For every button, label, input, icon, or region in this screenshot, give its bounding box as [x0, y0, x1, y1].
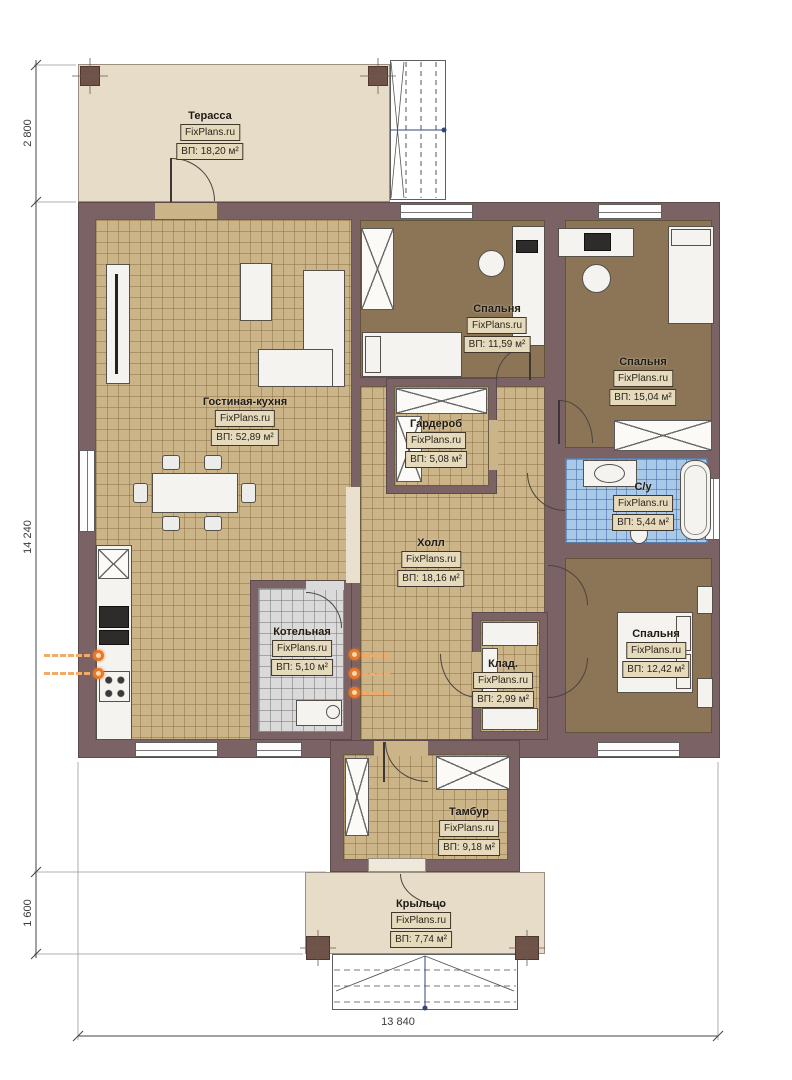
utility-line-left	[44, 654, 90, 657]
room-area: ВП: 12,42 м²	[622, 661, 689, 678]
window-bedroom2-top	[598, 204, 662, 219]
room-name: Гардероб	[410, 418, 462, 430]
utility-point-icon	[349, 668, 360, 679]
site-badge: FixPlans.ru	[467, 317, 527, 334]
site-badge: FixPlans.ru	[613, 370, 673, 387]
room-area: ВП: 5,44 м²	[612, 514, 674, 531]
room-name: Котельная	[273, 626, 331, 638]
site-badge: FixPlans.ru	[401, 551, 461, 568]
dining-chair	[204, 516, 222, 531]
utility-point-icon	[93, 650, 104, 661]
porch-door-opening	[368, 858, 426, 872]
room-label-storage: Клад. FixPlans.ru ВП: 2,99 м²	[472, 658, 534, 708]
dining-table	[152, 473, 238, 513]
bedroom2-printer	[584, 233, 611, 251]
window-living-bottom-2	[256, 742, 302, 757]
bedroom2-pillow	[671, 229, 711, 246]
kitchen-hob	[98, 549, 129, 579]
boiler-door-opening	[306, 581, 344, 590]
wardrobe-door-opening	[489, 420, 498, 470]
dining-chair	[204, 455, 222, 470]
room-area: ВП: 15,04 м²	[609, 389, 676, 406]
storage-shelf-top	[482, 622, 538, 646]
vestibule-closet	[345, 758, 369, 836]
dimension-left-bottom: 1 600	[22, 899, 34, 927]
bedroom3-nightstand-top	[697, 586, 713, 614]
room-label-hall: Холл FixPlans.ru ВП: 18,16 м²	[397, 537, 464, 587]
bedroom1-wardrobe	[361, 228, 394, 310]
room-area: ВП: 18,16 м²	[397, 570, 464, 587]
room-label-vestibule: Тамбур FixPlans.ru ВП: 9,18 м²	[438, 806, 500, 856]
site-badge: FixPlans.ru	[180, 124, 240, 141]
site-badge: FixPlans.ru	[391, 912, 451, 929]
utility-line-boiler	[362, 654, 390, 657]
terrace-post-right	[368, 66, 388, 86]
kitchen-appliance	[99, 630, 129, 645]
site-badge: FixPlans.ru	[215, 410, 275, 427]
bedroom1-pillow	[365, 336, 381, 373]
coffee-table	[240, 263, 272, 321]
room-name: Терасса	[188, 110, 232, 122]
room-area: ВП: 5,08 м²	[405, 451, 467, 468]
bedroom2-wardrobe	[614, 420, 712, 451]
utility-line-boiler	[362, 673, 390, 676]
boiler-dial	[326, 705, 340, 719]
room-label-wardrobe: Гардероб FixPlans.ru ВП: 5,08 м²	[405, 418, 467, 468]
room-label-terrace: Терасса FixPlans.ru ВП: 18,20 м²	[176, 110, 243, 160]
room-name: Спальня	[473, 303, 521, 315]
dining-chair	[241, 483, 256, 503]
room-label-bedroom-3: Спальня FixPlans.ru ВП: 12,42 м²	[622, 628, 689, 678]
site-badge: FixPlans.ru	[473, 672, 533, 689]
room-area: ВП: 9,18 м²	[438, 839, 500, 856]
site-badge: FixPlans.ru	[613, 495, 673, 512]
utility-point-icon	[93, 668, 104, 679]
site-badge: FixPlans.ru	[272, 640, 332, 657]
bedroom2-chair	[582, 264, 611, 293]
storage-shelf-bottom	[482, 708, 538, 730]
bathtub-inner	[684, 465, 707, 535]
room-area: ВП: 18,20 м²	[176, 143, 243, 160]
utility-point-icon	[349, 687, 360, 698]
site-badge: FixPlans.ru	[626, 642, 686, 659]
kitchen-sink	[99, 606, 129, 628]
wardrobe-closet-top	[396, 388, 487, 414]
terrace-door-opening	[155, 203, 217, 219]
tv-unit	[106, 264, 130, 384]
window-living-bottom-1	[135, 742, 218, 757]
floor-plan: 2 800 14 240 1 600 13 840 Терасса FixPla…	[0, 0, 792, 1080]
room-label-porch: Крыльцо FixPlans.ru ВП: 7,74 м²	[390, 898, 452, 948]
room-label-bedroom-1: Спальня FixPlans.ru ВП: 11,59 м²	[464, 303, 531, 353]
dimension-bottom: 13 840	[381, 1016, 415, 1028]
bedroom3-nightstand-bottom	[697, 678, 713, 708]
room-name: Крыльцо	[396, 898, 446, 910]
room-name: Тамбур	[449, 806, 489, 818]
window-bedroom3-bottom	[597, 742, 680, 757]
bedroom1-chair	[478, 250, 505, 277]
room-name: Холл	[417, 537, 445, 549]
porch-post-right	[515, 936, 539, 960]
room-label-bedroom-2: Спальня FixPlans.ru ВП: 15,04 м²	[609, 356, 676, 406]
porch-steps	[332, 954, 518, 1010]
room-name: С/у	[634, 481, 651, 493]
utility-point-icon	[349, 649, 360, 660]
room-label-boiler: Котельная FixPlans.ru ВП: 5,10 м²	[271, 626, 333, 676]
kitchen-stove	[99, 671, 130, 702]
room-label-living: Гостиная-кухня FixPlans.ru ВП: 52,89 м²	[203, 396, 287, 446]
room-area: ВП: 5,10 м²	[271, 659, 333, 676]
window-living-left	[79, 450, 95, 532]
dining-chair	[162, 516, 180, 531]
room-area: ВП: 11,59 м²	[464, 336, 531, 353]
site-badge: FixPlans.ru	[439, 820, 499, 837]
dimension-left-top: 2 800	[22, 119, 34, 147]
living-hall-opening	[346, 487, 360, 583]
sofa-section-chaise	[258, 349, 333, 387]
utility-line-boiler	[362, 692, 390, 695]
room-name: Гостиная-кухня	[203, 396, 287, 408]
room-area: ВП: 7,74 м²	[390, 931, 452, 948]
dining-chair	[162, 455, 180, 470]
room-name: Спальня	[619, 356, 667, 368]
dining-chair	[133, 483, 148, 503]
dimension-left-middle: 14 240	[22, 520, 34, 554]
tv-screen	[115, 274, 118, 374]
room-area: ВП: 52,89 м²	[211, 429, 278, 446]
site-badge: FixPlans.ru	[406, 432, 466, 449]
room-area: ВП: 2,99 м²	[472, 691, 534, 708]
bedroom1-computer	[516, 240, 538, 253]
room-name: Спальня	[632, 628, 680, 640]
room-label-bathroom: С/у FixPlans.ru ВП: 5,44 м²	[612, 481, 674, 531]
room-name: Клад.	[488, 658, 518, 670]
utility-line-left	[44, 672, 90, 675]
terrace-steps	[390, 60, 446, 200]
vestibule-wardrobe	[436, 756, 510, 790]
window-bedroom1-top	[400, 204, 473, 219]
terrace-post-left	[80, 66, 100, 86]
porch-post-left	[306, 936, 330, 960]
